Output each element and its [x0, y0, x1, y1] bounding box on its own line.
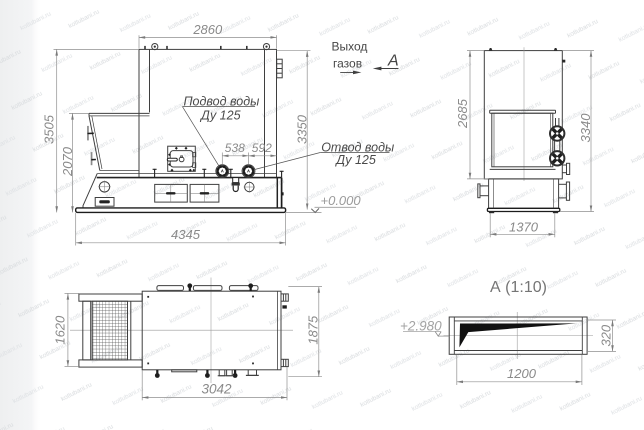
svg-text:538: 538: [225, 141, 245, 155]
svg-text:3340: 3340: [578, 113, 593, 143]
svg-text:2860: 2860: [192, 22, 223, 37]
svg-text:А (1:10): А (1:10): [490, 279, 547, 296]
svg-text:4345: 4345: [171, 227, 201, 242]
svg-text:Ду 125: Ду 125: [199, 108, 241, 122]
svg-text:2070: 2070: [60, 146, 75, 177]
svg-text:Выход: Выход: [332, 40, 368, 54]
svg-text:2685: 2685: [455, 98, 470, 129]
svg-text:А: А: [387, 53, 399, 70]
svg-text:1875: 1875: [306, 315, 321, 345]
svg-text:Ду 125: Ду 125: [334, 153, 376, 167]
svg-text:3350: 3350: [295, 114, 310, 144]
svg-text:3505: 3505: [41, 114, 56, 144]
svg-text:газов: газов: [333, 57, 362, 71]
svg-text:3042: 3042: [201, 382, 232, 397]
svg-text:320: 320: [598, 324, 613, 346]
svg-text:592: 592: [252, 141, 272, 155]
svg-text:1370: 1370: [509, 220, 539, 235]
svg-text:1620: 1620: [53, 315, 68, 345]
svg-text:1200: 1200: [507, 366, 537, 381]
svg-text:+0.000: +0.000: [321, 193, 362, 208]
